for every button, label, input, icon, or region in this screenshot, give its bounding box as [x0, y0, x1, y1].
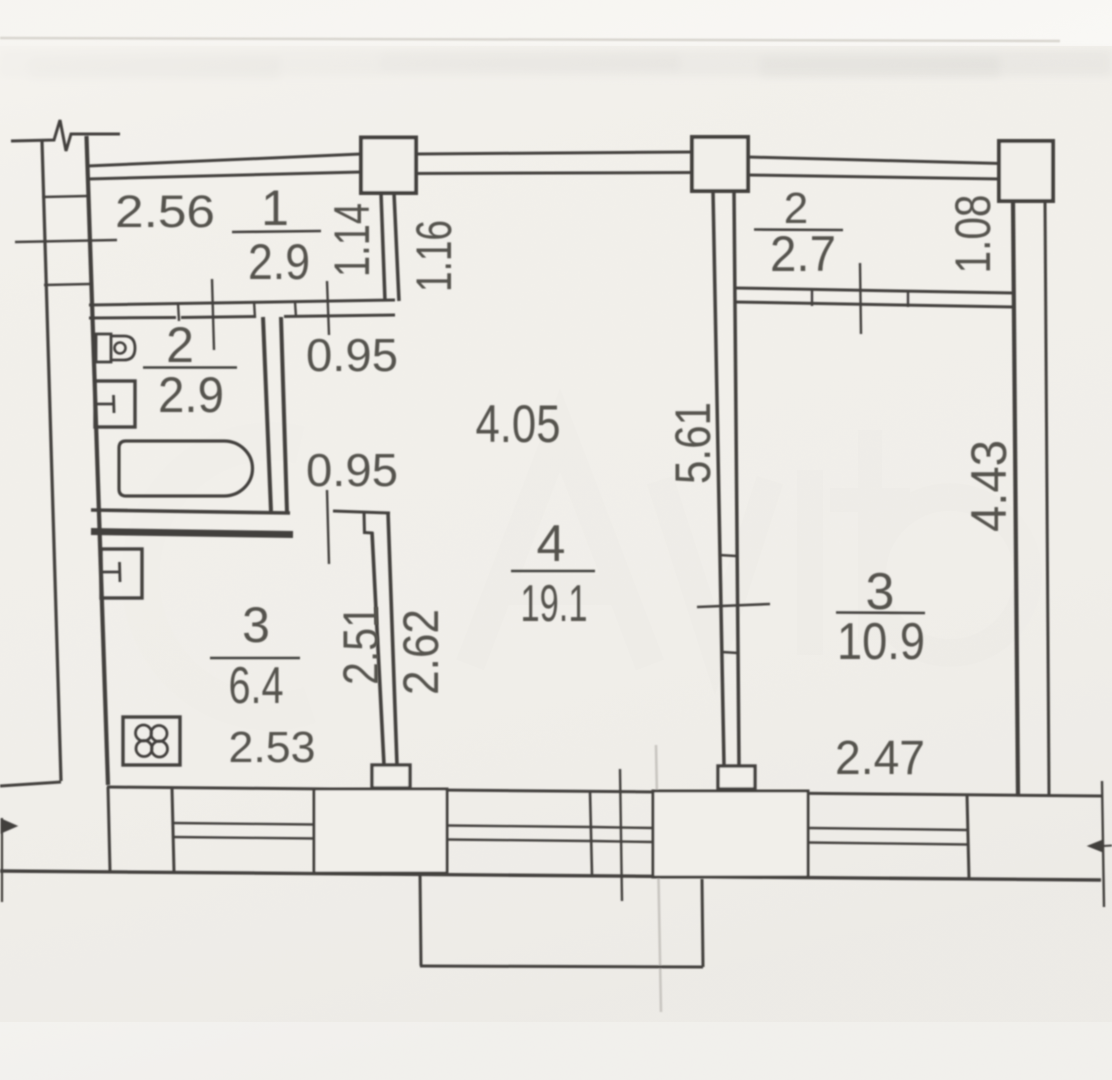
svg-text:1.16: 1.16 [406, 220, 462, 292]
svg-text:2.62: 2.62 [393, 609, 449, 695]
svg-text:10.9: 10.9 [837, 613, 925, 671]
svg-text:4.43: 4.43 [961, 440, 1017, 532]
svg-text:4.05: 4.05 [476, 395, 561, 454]
svg-text:2.7: 2.7 [770, 226, 836, 282]
svg-text:1: 1 [261, 180, 289, 236]
svg-text:4: 4 [537, 515, 566, 573]
svg-text:5.61: 5.61 [665, 402, 721, 484]
svg-text:2.53: 2.53 [229, 723, 316, 772]
svg-text:0.95: 0.95 [306, 444, 398, 496]
svg-text:19.1: 19.1 [521, 575, 588, 633]
svg-text:1.08: 1.08 [945, 195, 1001, 274]
svg-text:2: 2 [166, 317, 194, 373]
svg-text:0.95: 0.95 [306, 329, 398, 381]
svg-text:6.4: 6.4 [229, 657, 284, 715]
svg-text:1.14: 1.14 [324, 203, 380, 277]
svg-text:2.56: 2.56 [115, 186, 215, 237]
svg-text:3: 3 [242, 597, 270, 653]
svg-text:2.47: 2.47 [835, 732, 925, 785]
svg-text:2.9: 2.9 [248, 234, 310, 290]
svg-text:2.9: 2.9 [158, 367, 224, 423]
svg-text:2.51: 2.51 [333, 605, 389, 685]
